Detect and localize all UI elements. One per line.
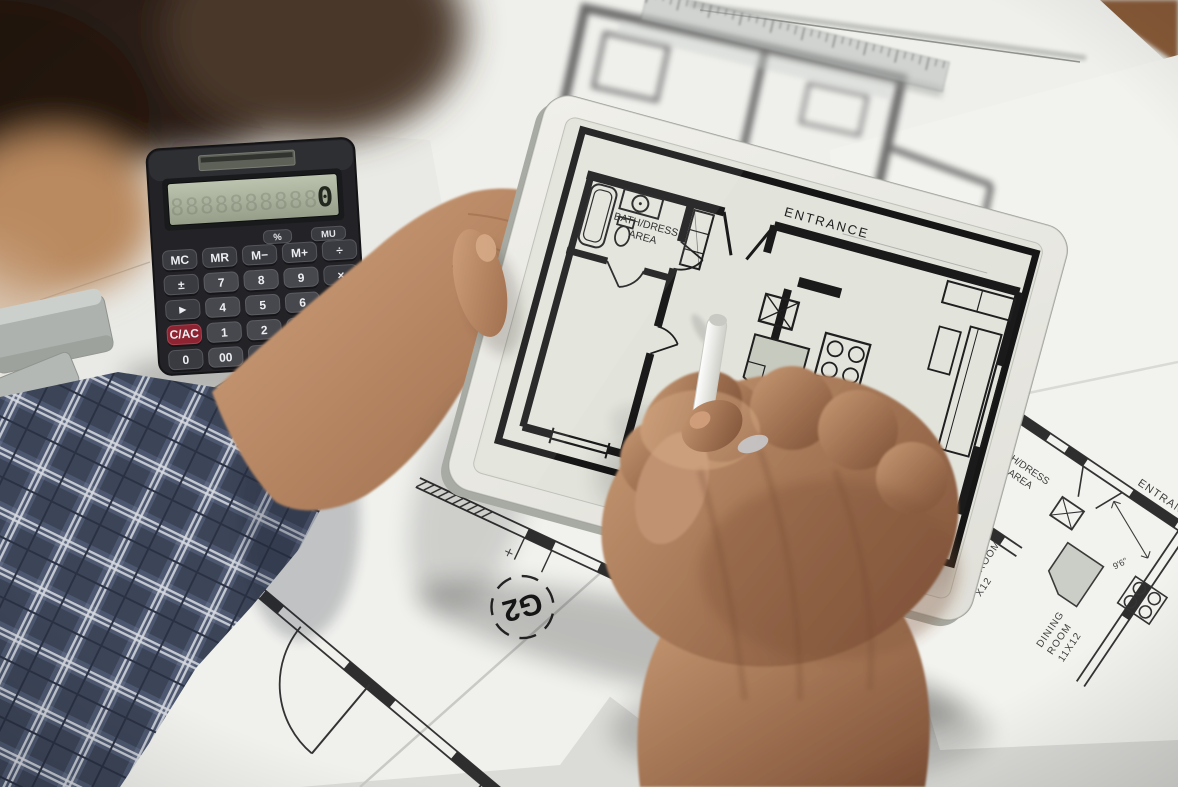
key-9: 9 — [284, 267, 319, 291]
svg-text:1: 1 — [221, 325, 229, 339]
key-clear: C/AC — [167, 324, 202, 348]
key-arrow: ► — [165, 299, 200, 323]
key-m-minus: M− — [242, 244, 277, 268]
key-4: 4 — [205, 297, 240, 321]
svg-text:4: 4 — [219, 300, 227, 314]
svg-text:8: 8 — [257, 273, 265, 287]
key-5: 5 — [245, 294, 280, 318]
svg-text:MU: MU — [321, 229, 337, 241]
svg-text:M−: M− — [251, 248, 269, 263]
svg-text:7: 7 — [217, 275, 225, 289]
svg-text:0: 0 — [182, 353, 190, 367]
key-7: 7 — [204, 272, 239, 296]
svg-text:MC: MC — [170, 253, 190, 268]
svg-text:÷: ÷ — [336, 243, 344, 257]
key-divide: ÷ — [322, 239, 357, 263]
photo-scene: 12790 3695 G2 — [0, 0, 1178, 787]
svg-text:C/AC: C/AC — [169, 326, 199, 342]
svg-text:M+: M+ — [291, 245, 309, 260]
svg-text:MR: MR — [210, 250, 230, 265]
svg-text:5: 5 — [259, 298, 267, 312]
key-mr: MR — [202, 247, 237, 271]
key-0: 0 — [168, 349, 203, 373]
key-00: 00 — [208, 346, 243, 370]
svg-text:%: % — [273, 232, 283, 244]
svg-text:00: 00 — [219, 350, 234, 365]
key-8: 8 — [244, 269, 279, 293]
key-mc: MC — [162, 249, 197, 273]
key-m-plus: M+ — [282, 242, 317, 266]
key-1: 1 — [207, 322, 242, 346]
svg-text:9: 9 — [297, 271, 305, 285]
svg-text:►: ► — [176, 302, 189, 317]
svg-text:2: 2 — [260, 323, 268, 337]
svg-text:±: ± — [178, 278, 186, 292]
lcd-value: 0 — [316, 182, 334, 214]
key-plus-minus: ± — [164, 274, 199, 298]
